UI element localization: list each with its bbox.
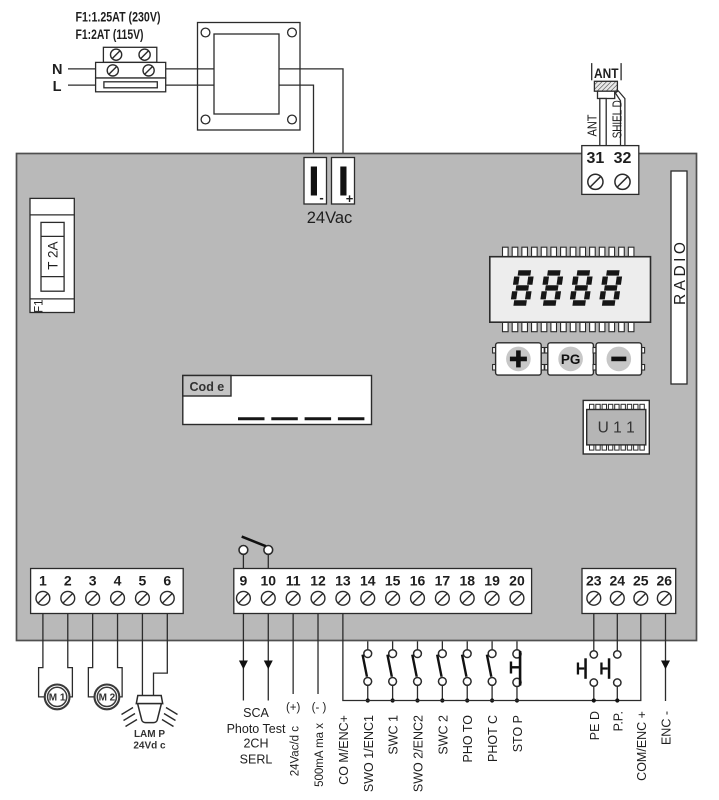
svg-text:12: 12 [310,573,326,589]
svg-text:500mA ma x: 500mA ma x [314,723,326,787]
svg-text:(+): (+) [286,702,301,714]
svg-text:23: 23 [586,573,602,589]
svg-text:4: 4 [114,573,122,589]
svg-text:5: 5 [139,573,147,589]
svg-text:31: 31 [587,150,605,167]
svg-text:SERL: SERL [240,753,273,767]
svg-text:PHOT C: PHOT C [486,715,500,762]
svg-text:SWC 2: SWC 2 [436,715,450,755]
svg-text:ANT: ANT [594,66,619,81]
svg-text:U 1 1: U 1 1 [598,420,635,437]
svg-text:LAM P: LAM P [134,729,165,740]
svg-text:CO M/ENC+: CO M/ENC+ [337,715,351,785]
svg-text:RADIO: RADIO [672,242,689,305]
svg-text:2: 2 [64,573,72,589]
svg-text:16: 16 [410,573,426,589]
svg-text:26: 26 [657,573,673,589]
svg-text:M 1: M 1 [49,693,66,704]
svg-text:PHO TO: PHO TO [461,715,475,763]
svg-text:F1: F1 [34,300,46,313]
svg-text:10: 10 [260,573,276,589]
svg-text:ANT: ANT [586,114,600,136]
svg-text:PG: PG [561,352,581,367]
svg-text:SWO 1/ENC1: SWO 1/ENC1 [362,715,376,792]
svg-text:PE D: PE D [588,711,602,740]
svg-text:19: 19 [484,573,500,589]
svg-text:9: 9 [240,573,248,589]
svg-text:14: 14 [360,573,376,589]
svg-text:SHIEL D: SHIEL D [610,100,624,138]
svg-text:T 2A: T 2A [45,242,60,270]
svg-text:13: 13 [335,573,351,589]
svg-text:SWC 1: SWC 1 [387,715,401,755]
svg-text:N: N [52,62,62,78]
svg-text:+: + [346,191,354,206]
svg-text:Cod e: Cod e [190,380,225,394]
svg-text:ENC -: ENC - [660,711,674,745]
svg-text:F1:2AT (115V): F1:2AT (115V) [76,27,144,42]
svg-text:25: 25 [633,573,649,589]
svg-text:M 2: M 2 [99,693,116,704]
svg-text:(- ): (- ) [312,702,327,714]
svg-text:15: 15 [385,573,401,589]
svg-text:20: 20 [509,573,525,589]
svg-text:F1:1.25AT (230V): F1:1.25AT (230V) [76,10,161,25]
svg-text:6: 6 [163,573,171,589]
svg-text:24Vac: 24Vac [307,209,353,227]
svg-text:P.P.: P.P. [611,711,625,731]
svg-text:SCA: SCA [243,706,269,720]
svg-text:24Vd c: 24Vd c [133,741,166,752]
svg-text:COM/ENC +: COM/ENC + [635,711,649,781]
svg-text:Photo Test: Photo Test [227,722,286,736]
svg-text:STO P: STO P [511,715,525,752]
svg-text:SWO 2/ENC2: SWO 2/ENC2 [411,715,425,792]
svg-text:-: - [319,190,323,205]
svg-text:L: L [53,79,62,95]
svg-text:2CH: 2CH [243,737,268,751]
svg-text:24Vac/d c: 24Vac/d c [289,726,301,777]
svg-text:18: 18 [459,573,475,589]
svg-text:1: 1 [39,573,47,589]
svg-text:11: 11 [286,573,301,589]
svg-text:3: 3 [89,573,97,589]
svg-text:32: 32 [614,150,632,167]
svg-text:17: 17 [435,573,451,589]
svg-text:24: 24 [610,573,626,589]
